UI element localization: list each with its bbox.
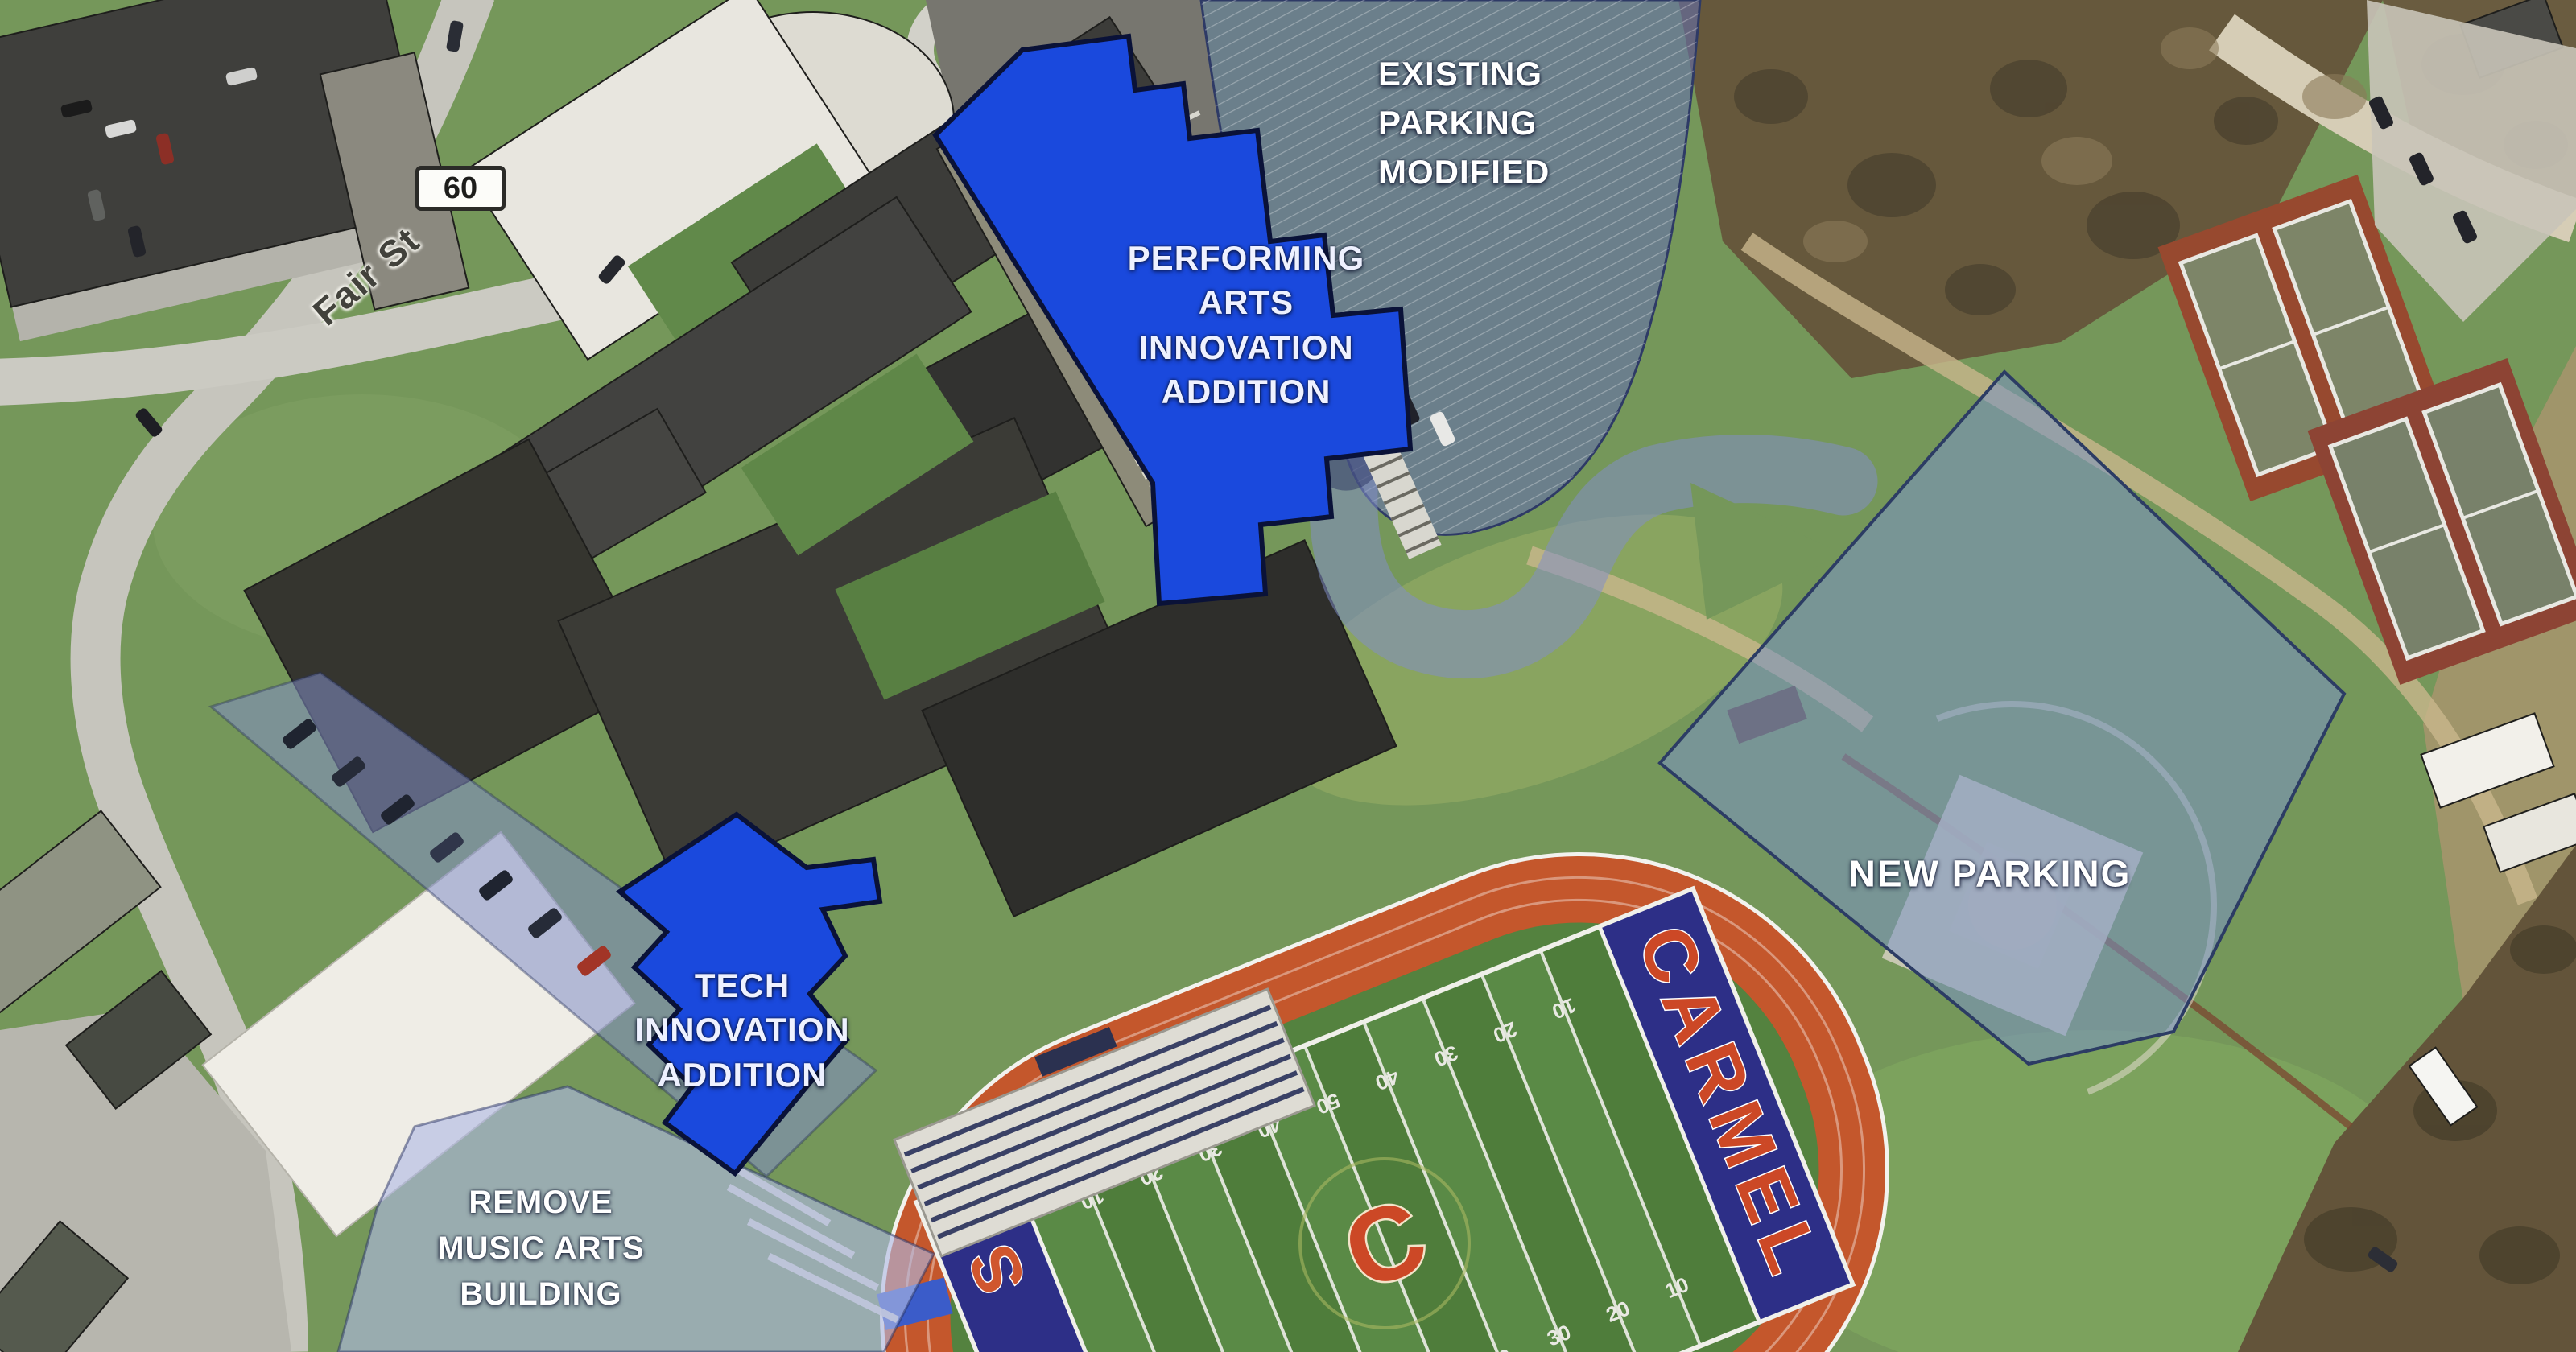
new-parking-label: NEW PARKING <box>1849 850 2132 899</box>
map-canvas: 10 20 30 40 50 40 30 20 10 10 20 30 40 5… <box>0 0 2576 1352</box>
remove-music-label: REMOVE MUSIC ARTS BUILDING <box>437 1180 644 1317</box>
route-60-shield: 60 <box>415 166 506 211</box>
aerial-site-plan: 10 20 30 40 50 40 30 20 10 10 20 30 40 5… <box>0 0 2576 1352</box>
existing-parking-label: EXISTING PARKING MODIFIED <box>1378 50 1550 197</box>
route-number: 60 <box>444 171 477 206</box>
performing-arts-label: PERFORMING ARTS INNOVATION ADDITION <box>1128 236 1365 414</box>
tennis-parking <box>2367 0 2576 322</box>
tech-innovation-label: TECH INNOVATION ADDITION <box>634 963 849 1097</box>
